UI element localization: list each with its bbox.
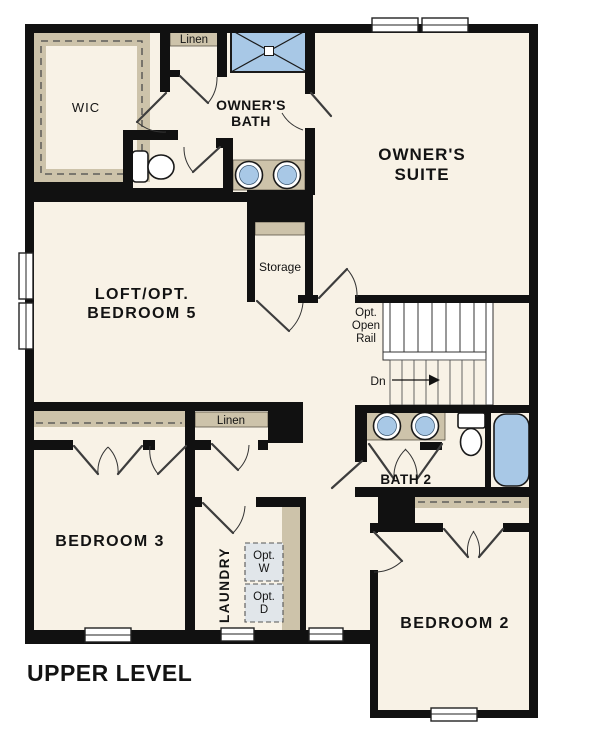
storage-shelf (255, 222, 305, 235)
wall-wc-top (123, 130, 178, 140)
stair-rail-right (486, 302, 493, 405)
owners-vanity (233, 160, 305, 190)
shower (231, 30, 307, 72)
wall-bath2-left (355, 405, 367, 462)
wall-suite-bottom (355, 295, 529, 303)
wall-bedroom3-laundry (185, 402, 195, 630)
wall-loft-top (25, 192, 247, 202)
stair-rail-mid (383, 352, 489, 360)
staircase (383, 302, 493, 405)
wall-bath-suite-lower (305, 128, 315, 195)
wall-vanity-left (223, 138, 233, 192)
stair-upper-flight (390, 302, 487, 352)
wic-label: WIC (72, 100, 100, 115)
owners-suite-label-2: SUITE (394, 165, 449, 184)
wall-bath-suite-upper (305, 24, 315, 94)
window (19, 303, 33, 349)
rail-note-3: Rail (356, 333, 376, 345)
bath2-label: BATH 2 (380, 472, 431, 487)
window (221, 628, 254, 641)
wall-laundry-right (300, 497, 306, 630)
wall-loft-bottom (25, 402, 303, 411)
wall-storage-left (247, 222, 255, 302)
wall-chase (247, 190, 313, 222)
bathtub (494, 414, 529, 486)
floor-plan-svg: WIC Linen OWNER'S BATH OWNER'S SUITE LOF… (0, 0, 607, 744)
owners-bath-label-1: OWNER'S (216, 97, 286, 113)
wall-storage-right (305, 222, 313, 302)
shower-drain (265, 47, 274, 56)
bath2-vanity (365, 412, 445, 440)
window (85, 628, 131, 642)
wall-right (529, 24, 538, 718)
wall-bath2-top (365, 405, 538, 413)
opt-washer-label-1: Opt. (253, 550, 275, 562)
bedroom3-closet-shelf (33, 410, 185, 427)
opt-washer-label-2: W (259, 563, 270, 575)
wall-linen-shower (217, 24, 227, 77)
laundry-label: LAUNDRY (217, 547, 232, 623)
linen-hall-label: Linen (217, 415, 245, 427)
window (309, 628, 343, 641)
linen-top-label: Linen (180, 34, 208, 46)
stair-rail-left (383, 302, 390, 360)
loft-label-1: LOFT/OPT. (95, 286, 189, 303)
laundry-counter (282, 505, 300, 630)
window (19, 253, 33, 299)
bedroom2-label: BEDROOM 2 (400, 615, 510, 632)
owners-bath-label-2: BATH (231, 113, 271, 129)
wall-wic-linen (160, 24, 170, 92)
wall-laundry-top (256, 497, 306, 507)
optional-washer (245, 543, 283, 581)
owners-suite-label-1: OWNER'S (378, 145, 466, 164)
storage-label: Storage (259, 260, 301, 274)
loft-label-2: BEDROOM 5 (87, 305, 197, 322)
window (431, 708, 477, 721)
opt-dryer-label-1: Opt. (253, 591, 275, 603)
plan-title: UPPER LEVEL (27, 660, 192, 686)
opt-dryer-label-2: D (260, 604, 268, 616)
bedroom3-label: BEDROOM 3 (55, 533, 165, 550)
stairs-dn-label: Dn (370, 374, 385, 388)
rail-note-2: Open (352, 320, 380, 332)
window (422, 18, 468, 32)
wall-tub-divider (485, 412, 491, 487)
wall-bedroom2-left (370, 570, 378, 710)
rail-note-1: Opt. (355, 307, 377, 319)
optional-dryer (245, 584, 283, 622)
floor-plan-page: WIC Linen OWNER'S BATH OWNER'S SUITE LOF… (0, 0, 607, 744)
window (372, 18, 418, 32)
